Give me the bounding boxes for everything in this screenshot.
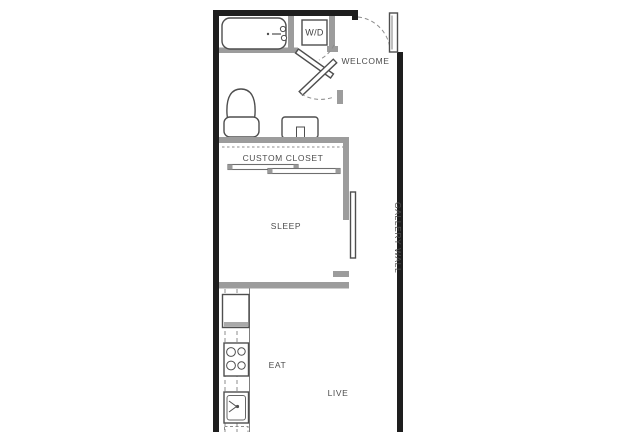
kitchen-sink-icon: [224, 392, 249, 423]
bedroom-right-wall: [343, 137, 349, 220]
bedroom-door-return: [333, 271, 349, 277]
toilet-icon: [224, 89, 259, 137]
floor-plan: WELCOME W/D: [0, 0, 640, 432]
welcome-label: WELCOME: [341, 56, 389, 66]
wall-top: [213, 10, 358, 16]
bedroom-sliding-door-icon: [351, 192, 356, 258]
live-label: LIVE: [328, 388, 349, 398]
bedroom-bottom-wall: [219, 282, 349, 289]
bathroom: W/D: [219, 16, 343, 138]
range-cooktop-icon: [224, 343, 249, 376]
room-labels: EAT LIVE: [269, 360, 349, 398]
entry: WELCOME: [341, 13, 397, 66]
sleep-label: SLEEP: [271, 221, 301, 231]
washer-dryer-icon: W/D: [302, 20, 327, 45]
eat-label: EAT: [269, 360, 287, 370]
closet-sliding-doors-icon: [228, 165, 340, 174]
floor-plan-drawing: WELCOME W/D: [0, 0, 640, 432]
wall-top-end-cap: [352, 16, 358, 20]
closet: CUSTOM CLOSET: [219, 137, 349, 174]
entry-door-icon: [390, 13, 398, 52]
wd-right-wall: [329, 16, 335, 47]
gallery-wall-label: GALLERY WALL: [393, 202, 403, 273]
vanity-sink-icon: [282, 117, 318, 138]
dishwasher-icon: [225, 427, 249, 432]
refrigerator-icon: [223, 295, 250, 328]
bathtub-icon: [222, 18, 287, 49]
custom-closet-label: CUSTOM CLOSET: [243, 153, 324, 163]
kitchen: [223, 289, 250, 432]
bathroom-door-swing-b: [301, 94, 334, 99]
wall-left: [213, 10, 219, 432]
washer-dryer-label: W/D: [305, 28, 324, 38]
foyer-wall-stub: [337, 90, 343, 104]
corridor: GALLERY WALL: [393, 202, 403, 273]
entry-door-swing-arc: [358, 17, 390, 49]
closet-top-wall: [219, 137, 349, 143]
tub-wd-divider-wall: [288, 16, 294, 50]
